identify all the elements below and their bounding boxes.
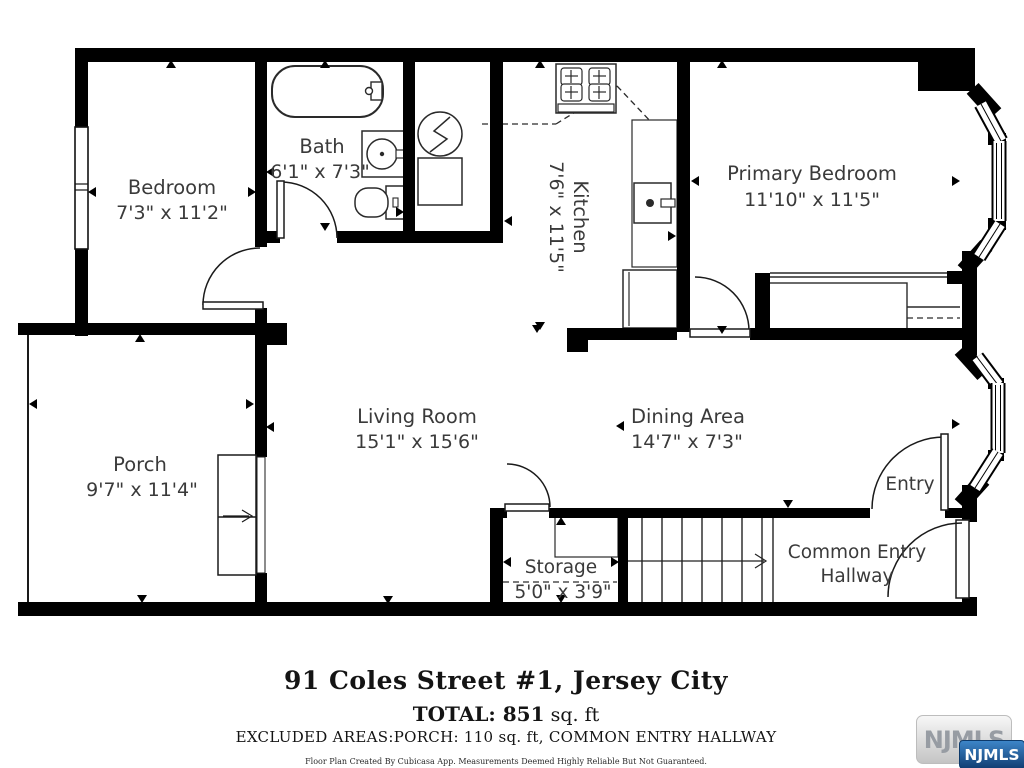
floor-plan-drawing: Bedroom 7'3" x 11'2" Bath 6'1" x 7'3" Ki… bbox=[0, 0, 1024, 768]
storage-door bbox=[505, 464, 550, 511]
bath-label: Bath bbox=[299, 135, 344, 158]
bathtub-icon bbox=[272, 66, 383, 117]
dining-area-label: Dining Area bbox=[631, 405, 745, 428]
closet bbox=[763, 273, 960, 331]
living-room-label: Living Room bbox=[357, 405, 477, 428]
njmls-logo: NJMLS NJMLS bbox=[916, 715, 1012, 764]
entry-label: Entry bbox=[885, 474, 934, 495]
njmls-badge: NJMLS bbox=[959, 740, 1024, 768]
bath-door bbox=[277, 181, 337, 238]
water-heater-icon bbox=[418, 112, 462, 205]
kitchen-counter bbox=[623, 120, 677, 328]
bedroom-door bbox=[203, 248, 263, 309]
bedroom-dims: 7'3" x 11'2" bbox=[116, 202, 228, 224]
kitchen-dims: 7'6" x 11'5" bbox=[545, 161, 567, 273]
hallway-label-line2: Hallway bbox=[821, 566, 894, 587]
dining-area-dims: 14'7" x 7'3" bbox=[631, 431, 743, 453]
storage-dims: 5'0" x 3'9" bbox=[515, 582, 612, 603]
bay-windows bbox=[975, 104, 1002, 488]
total-area-unit: sq. ft bbox=[545, 704, 600, 726]
kitchen-label: Kitchen bbox=[569, 180, 592, 253]
primary-bedroom-dims: 11'10" x 11'5" bbox=[744, 189, 880, 211]
bay-window-upper bbox=[979, 104, 1002, 257]
walls bbox=[18, 48, 1006, 616]
primary-bedroom-label: Primary Bedroom bbox=[727, 162, 897, 185]
stairs bbox=[622, 517, 773, 603]
floor-plan-page: Bedroom 7'3" x 11'2" Bath 6'1" x 7'3" Ki… bbox=[0, 0, 1024, 768]
disclaimer: Floor Plan Created By Cubicasa App. Meas… bbox=[0, 757, 1012, 766]
porch-label: Porch bbox=[113, 453, 167, 476]
bedroom-window-icon bbox=[75, 127, 88, 249]
page-title: 91 Coles Street #1, Jersey City bbox=[0, 666, 1012, 695]
hallway-label-line1: Common Entry bbox=[788, 542, 926, 563]
storage-label: Storage bbox=[525, 557, 597, 578]
kitchen-label-group: Kitchen 7'6" x 11'5" bbox=[545, 161, 592, 273]
living-room-dims: 15'1" x 15'6" bbox=[355, 431, 479, 453]
stove-icon bbox=[556, 64, 616, 113]
total-area: TOTAL: 851 sq. ft bbox=[0, 702, 1012, 726]
total-area-bold: TOTAL: 851 bbox=[413, 702, 545, 726]
excluded-areas: EXCLUDED AREAS:PORCH: 110 sq. ft, COMMON… bbox=[0, 728, 1012, 746]
caption-block: 91 Coles Street #1, Jersey City TOTAL: 8… bbox=[0, 666, 1012, 766]
bath-dims: 6'1" x 7'3" bbox=[270, 161, 370, 183]
bedroom-label: Bedroom bbox=[128, 176, 216, 199]
entry-door bbox=[872, 434, 948, 510]
stairs-direction-arrow bbox=[622, 554, 766, 568]
porch-dims: 9'7" x 11'4" bbox=[86, 479, 198, 501]
porch-sliding-door bbox=[218, 455, 265, 575]
kitchen-sink-icon bbox=[634, 183, 675, 223]
